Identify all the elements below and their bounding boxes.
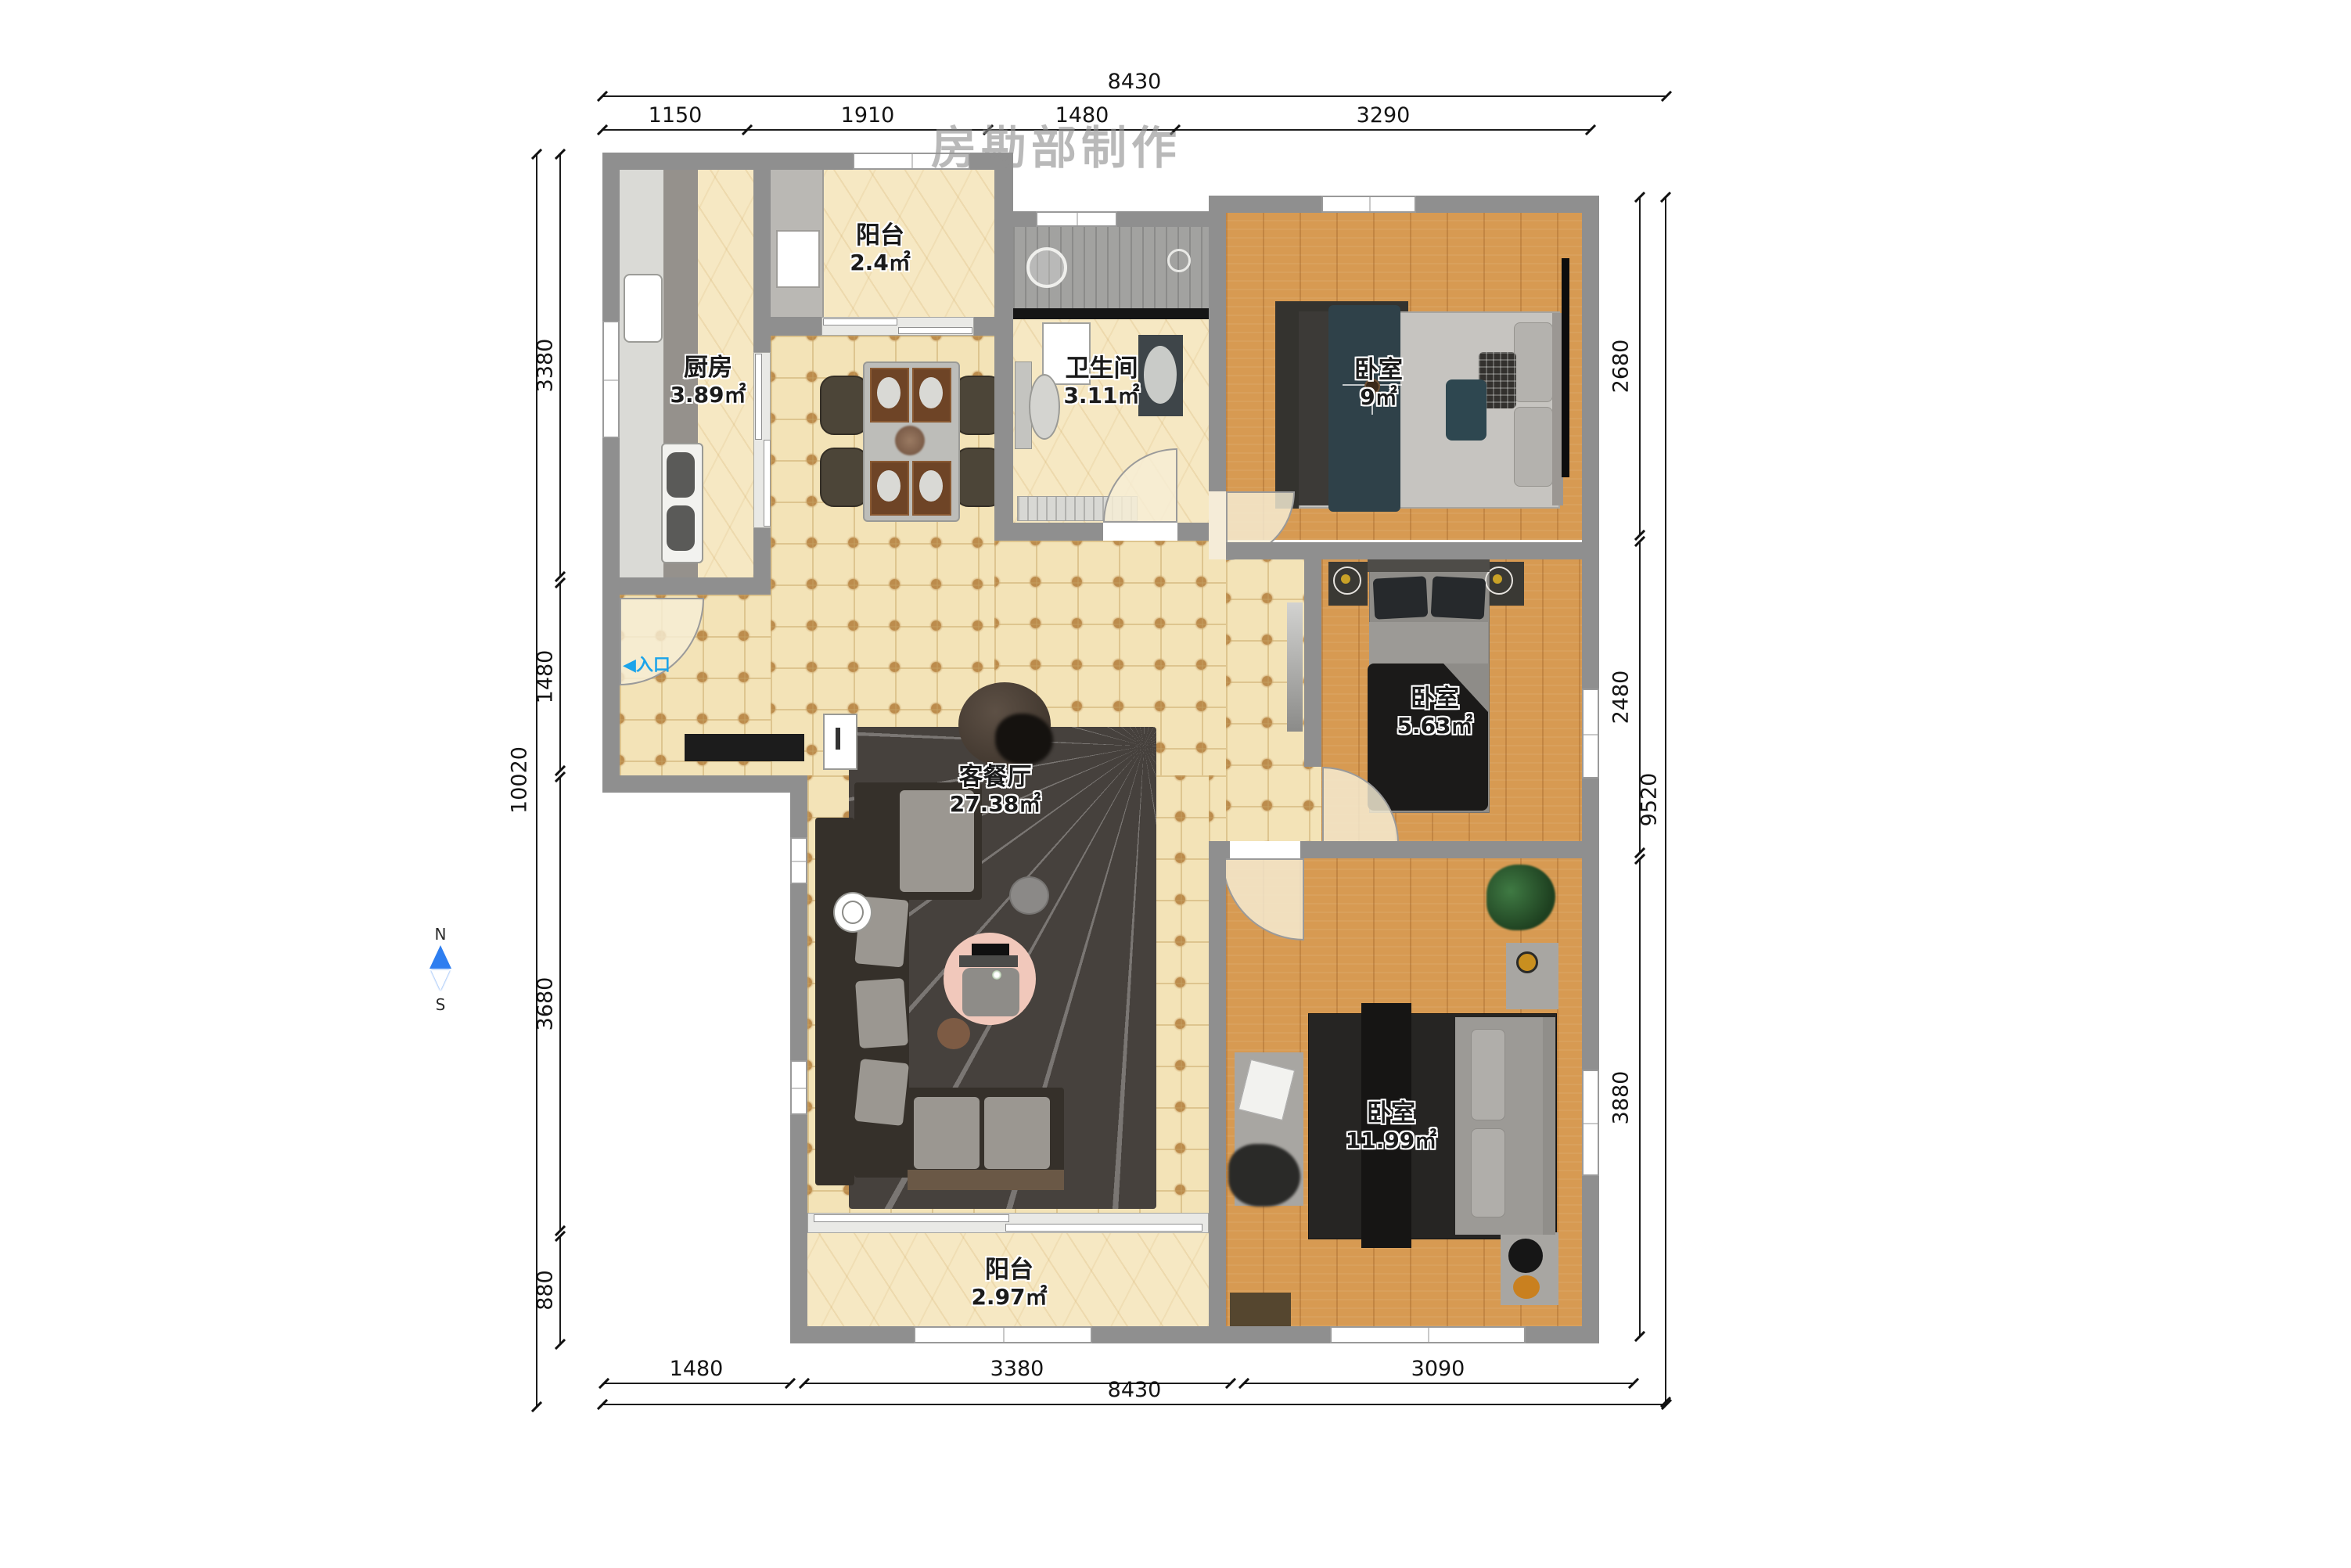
- dim-line: [559, 777, 561, 1231]
- tv-wall-bar: [1562, 258, 1569, 477]
- wall: [753, 528, 771, 595]
- shoe-cabinet: [685, 734, 804, 761]
- window: [790, 1060, 807, 1115]
- dim-line: [602, 1404, 1666, 1405]
- wall: [1209, 858, 1226, 1343]
- window: [1330, 1326, 1526, 1343]
- plate: [919, 470, 943, 502]
- bed-bottom-pillow: [1471, 1128, 1505, 1217]
- compass-north-label: N: [435, 925, 447, 944]
- room-label-bathroom: 卫生间 3.11㎡: [1063, 355, 1139, 408]
- window: [1321, 196, 1416, 213]
- plate: [877, 470, 900, 502]
- bath-basin: [1144, 346, 1177, 404]
- sliding-panel: [898, 327, 972, 334]
- room-label-balcony-bottom: 阳台 2.97㎡: [971, 1257, 1047, 1310]
- side-table-ring: [842, 901, 864, 924]
- sofa-pillow: [854, 1059, 909, 1126]
- balcony-washer: [776, 230, 820, 288]
- laundry-lamp-icon: [1167, 249, 1191, 272]
- dim-label: 3290: [1357, 103, 1411, 128]
- wall: [1300, 841, 1599, 858]
- tv-console: [959, 955, 1018, 967]
- dim-label: 1910: [841, 103, 895, 128]
- dim-line: [1639, 197, 1641, 535]
- window: [1036, 211, 1117, 227]
- entrance-arrow-icon: ◀: [623, 656, 636, 675]
- pouf-brown: [937, 1018, 970, 1049]
- dim-line: [602, 95, 1666, 97]
- pouf-gray: [1009, 876, 1049, 915]
- stove-burner-2: [667, 505, 695, 551]
- mat-lamp-icon: [1516, 951, 1538, 973]
- window: [790, 837, 807, 884]
- dim-line: [804, 1383, 1231, 1384]
- room-label-kitchen: 厨房 3.89㎡: [670, 354, 746, 408]
- sliding-panel: [814, 1214, 1009, 1222]
- dim-label: 8430: [1108, 70, 1162, 94]
- dresser: [1230, 1293, 1291, 1326]
- wall: [1209, 196, 1226, 491]
- dim-line: [559, 583, 561, 771]
- room-label-living: 客餐厅 27.38㎡: [950, 764, 1041, 817]
- tv-armchair: [962, 968, 1019, 1016]
- door-opening: [1209, 491, 1226, 559]
- dim-line: [604, 1383, 790, 1384]
- dim-label: 1480: [670, 1357, 724, 1381]
- dim-label: 1480: [534, 650, 558, 704]
- entrance-label: ◀入口: [623, 651, 670, 676]
- room-label-bedroom-top: 卧室 9㎡: [1354, 357, 1403, 410]
- dining-chair: [820, 448, 868, 507]
- floor-plan-canvas: 房勘部制作: [0, 0, 2351, 1568]
- kitchen-sink: [624, 274, 663, 343]
- compass-south-label: S: [436, 995, 446, 1014]
- dim-label: 3090: [1411, 1357, 1465, 1381]
- sofa-back: [815, 818, 854, 1185]
- dim-label: 3380: [990, 1357, 1044, 1381]
- dim-label: 2480: [1609, 671, 1634, 725]
- dim-label: 9520: [1637, 773, 1662, 827]
- dim-label: 3880: [1609, 1071, 1634, 1125]
- dim-label: 880: [534, 1270, 558, 1311]
- dim-line: [1639, 859, 1641, 1336]
- bed-teal-cushion: [1446, 379, 1486, 441]
- dim-line: [1665, 197, 1666, 1402]
- bed-mid-pillow: [1373, 576, 1429, 619]
- drying-rack-icon: [1026, 247, 1067, 288]
- sofa-console: [908, 1170, 1064, 1190]
- wall: [1304, 542, 1321, 767]
- hall-mirror: [1287, 602, 1303, 732]
- dim-label: 3380: [534, 339, 558, 393]
- lamp-bulb: [1493, 574, 1502, 584]
- sofa-cushion: [914, 1097, 980, 1169]
- lamp-bulb: [1341, 574, 1350, 584]
- bed-pillow: [1514, 407, 1553, 487]
- hall-appliance-box: [823, 714, 857, 770]
- hall-appliance-mark: [836, 728, 840, 750]
- wall: [602, 153, 620, 793]
- wall: [974, 317, 994, 336]
- compass-needle-south-icon: [431, 970, 450, 991]
- wall: [994, 523, 1103, 541]
- plate: [877, 377, 900, 408]
- tv-screen: [972, 944, 1009, 955]
- dim-line: [559, 154, 561, 577]
- bed-mid-pillow: [1431, 576, 1486, 619]
- wall: [1209, 841, 1230, 858]
- window: [1582, 1070, 1599, 1176]
- dim-line: [559, 1236, 561, 1344]
- dim-label: 3680: [534, 977, 558, 1031]
- bed-bottom-headboard: [1543, 1017, 1555, 1235]
- dim-label: 10020: [508, 746, 532, 814]
- round-table: [1508, 1239, 1543, 1273]
- compass-needle-north-icon: [430, 945, 451, 969]
- sliding-panel: [1005, 1224, 1202, 1232]
- window: [914, 1326, 1092, 1343]
- table-centerpiece: [895, 426, 925, 455]
- bed-bottom-pillow: [1471, 1029, 1505, 1120]
- wall: [771, 317, 821, 336]
- watermark: 房勘部制作: [931, 111, 1299, 177]
- room-label-bedroom-bottom: 卧室 11.99㎡: [1346, 1100, 1437, 1153]
- window: [602, 321, 620, 438]
- bed-mid-headboard: [1368, 559, 1490, 572]
- stove-burner-1: [667, 452, 695, 498]
- wall: [602, 577, 771, 595]
- plate: [919, 377, 943, 408]
- dim-line: [1244, 1383, 1634, 1384]
- wall: [753, 170, 771, 352]
- sliding-panel: [823, 318, 897, 325]
- plant-foliage: [995, 714, 1053, 765]
- flower-icon: [992, 970, 1001, 980]
- sofa-cushion: [984, 1097, 1050, 1169]
- toilet-bowl: [1029, 374, 1060, 440]
- room-label-bedroom-mid: 卧室 5.63㎡: [1397, 685, 1472, 739]
- stool-orange: [1513, 1275, 1540, 1299]
- dim-label: 1150: [649, 103, 703, 128]
- dim-label: 8430: [1108, 1378, 1162, 1402]
- wall: [602, 775, 807, 793]
- dim-label: 2680: [1609, 340, 1634, 394]
- wall: [1209, 542, 1599, 559]
- sofa-pillow: [855, 978, 908, 1048]
- window: [1582, 689, 1599, 779]
- sliding-panel: [755, 354, 762, 440]
- fur-throw: [1228, 1144, 1300, 1207]
- wall: [994, 153, 1013, 541]
- bed-pillow: [1514, 322, 1553, 402]
- sliding-panel: [764, 440, 771, 527]
- room-label-balcony-top: 阳台 2.4㎡: [850, 222, 911, 275]
- hall-floor-d: [1209, 775, 1226, 841]
- kitchen-counter: [620, 170, 665, 577]
- bath-counter-line: [1013, 308, 1209, 319]
- dining-chair: [820, 376, 868, 435]
